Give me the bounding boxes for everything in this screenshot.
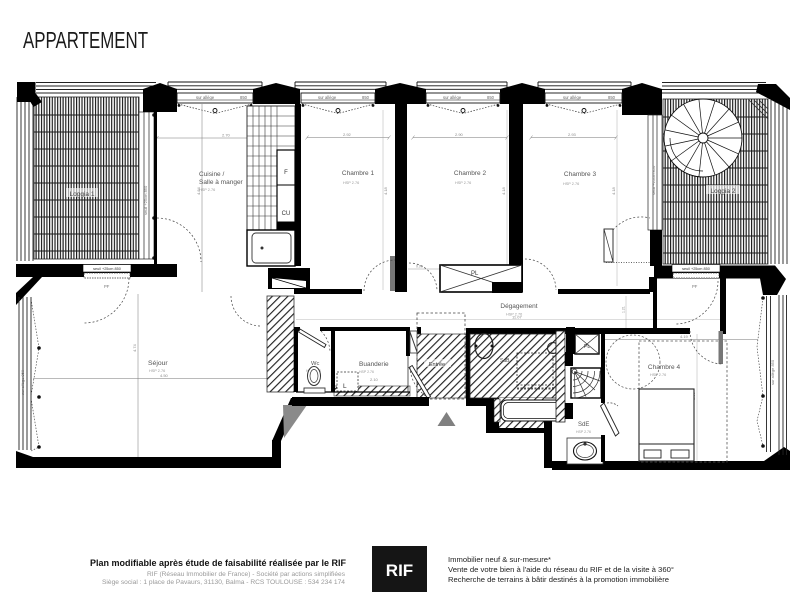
svg-text:Plan modifiable après étude de: Plan modifiable après étude de faisabili… <box>90 558 346 569</box>
svg-text:2.70: 2.70 <box>222 133 231 138</box>
svg-text:seuil +25cm 850: seuil +25cm 850 <box>651 165 656 195</box>
svg-text:APPARTEMENT: APPARTEMENT <box>23 27 148 53</box>
svg-text:850: 850 <box>362 95 370 100</box>
svg-text:sur allège: sur allège <box>196 95 215 100</box>
svg-text:Loggia 1: Loggia 1 <box>70 191 95 198</box>
svg-text:HSP 2.76: HSP 2.76 <box>359 370 374 374</box>
svg-text:2.93: 2.93 <box>568 132 577 137</box>
svg-text:F: F <box>284 170 288 176</box>
svg-text:sur allège 850: sur allège 850 <box>20 369 25 395</box>
svg-text:Vente de votre bien à l'aide d: Vente de votre bien à l'aide du réseau d… <box>448 565 674 574</box>
svg-text:Dégagement: Dégagement <box>500 303 537 310</box>
svg-text:HSP 2.76: HSP 2.76 <box>455 181 471 185</box>
svg-text:SdB: SdB <box>500 358 510 364</box>
svg-text:2.92: 2.92 <box>343 132 352 137</box>
svg-text:Immobilier neuf & sur-mesure*: Immobilier neuf & sur-mesure* <box>448 555 551 564</box>
svg-text:HSP 2.76: HSP 2.76 <box>650 373 666 377</box>
svg-text:HSP 2.76: HSP 2.76 <box>343 181 359 185</box>
svg-text:sur allège: sur allège <box>563 95 582 100</box>
svg-text:L: L <box>343 383 347 390</box>
svg-text:850: 850 <box>240 95 248 100</box>
svg-text:PF: PF <box>692 284 698 289</box>
svg-text:CU: CU <box>282 211 291 217</box>
svg-text:Buanderie: Buanderie <box>359 361 389 368</box>
svg-text:2.10: 2.10 <box>370 377 379 382</box>
svg-text:PF: PF <box>104 284 110 289</box>
svg-text:Salle à manger: Salle à manger <box>199 179 244 186</box>
svg-text:Wc: Wc <box>311 361 319 367</box>
svg-text:4.19: 4.19 <box>680 334 689 339</box>
svg-text:RIF (Réseau Immobilier de Fran: RIF (Réseau Immobilier de France) - Soci… <box>147 571 345 578</box>
svg-text:seuil +25cm 850: seuil +25cm 850 <box>682 267 710 271</box>
svg-text:Séjour: Séjour <box>148 360 168 367</box>
svg-text:11.07: 11.07 <box>512 315 522 320</box>
svg-text:sur allège: sur allège <box>443 95 462 100</box>
svg-text:2.90: 2.90 <box>455 132 464 137</box>
svg-text:4.50: 4.50 <box>160 373 169 378</box>
svg-text:4.74: 4.74 <box>132 343 137 352</box>
svg-text:HSP 2.76: HSP 2.76 <box>563 182 579 186</box>
svg-text:sur allège: sur allège <box>318 95 337 100</box>
svg-text:Chambre 1: Chambre 1 <box>342 170 375 177</box>
svg-text:seuil +25cm 850: seuil +25cm 850 <box>143 185 148 215</box>
svg-text:Chambre 4: Chambre 4 <box>648 364 681 371</box>
svg-text:Cuisine /: Cuisine / <box>199 171 224 178</box>
svg-text:SdE: SdE <box>578 422 589 428</box>
svg-text:sur allège 850: sur allège 850 <box>770 359 775 385</box>
svg-text:4.18: 4.18 <box>501 186 506 195</box>
svg-text:Chambre 3: Chambre 3 <box>564 171 597 178</box>
svg-text:Siège social : 1 place de Pava: Siège social : 1 place de Pavaurs, 31130… <box>102 579 346 586</box>
svg-text:Chambre 2: Chambre 2 <box>454 170 487 177</box>
svg-text:1.21: 1.21 <box>622 306 626 313</box>
svg-text:4.84: 4.84 <box>196 186 201 195</box>
svg-text:RIF: RIF <box>386 561 413 580</box>
svg-text:PL: PL <box>471 271 479 277</box>
svg-text:Recherche de terrains à bâtir: Recherche de terrains à bâtir destinés à… <box>448 575 669 584</box>
svg-text:4.18: 4.18 <box>383 186 388 195</box>
svg-text:HSP 2.76: HSP 2.76 <box>576 430 591 434</box>
svg-text:Entrée: Entrée <box>429 362 445 368</box>
svg-text:850: 850 <box>608 95 616 100</box>
svg-text:Loggia 2: Loggia 2 <box>711 188 736 195</box>
svg-text:HSP 2.76: HSP 2.76 <box>199 188 215 192</box>
svg-text:850: 850 <box>487 95 495 100</box>
svg-text:seuil +25cm 850: seuil +25cm 850 <box>93 267 121 271</box>
svg-text:4.18: 4.18 <box>611 186 616 195</box>
svg-text:PL: PL <box>584 344 590 350</box>
